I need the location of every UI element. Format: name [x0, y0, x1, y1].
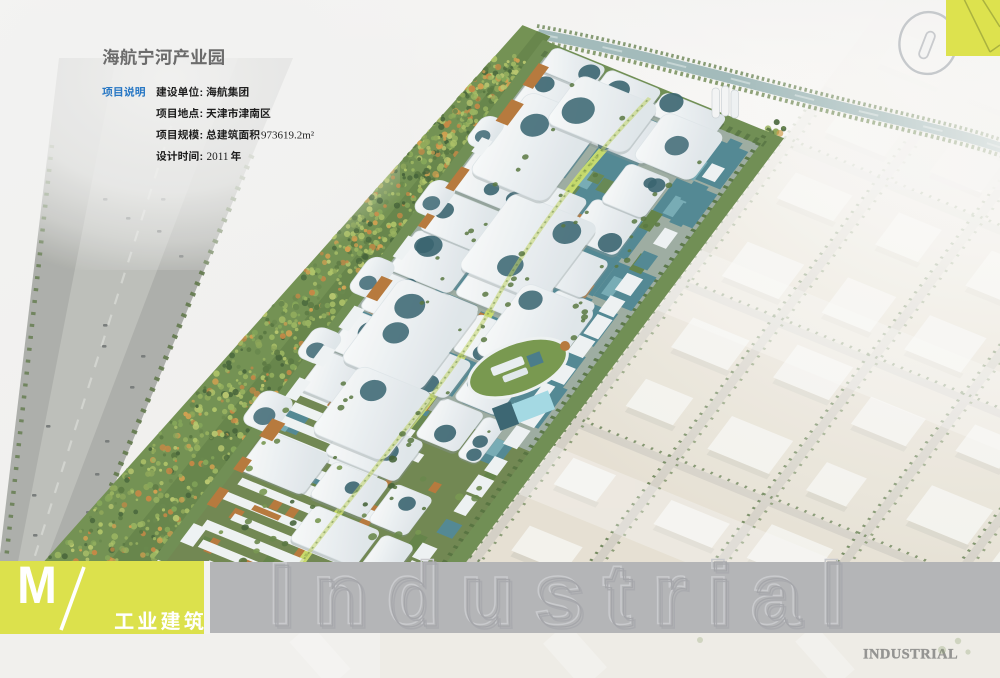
svg-text::: : — [200, 108, 204, 120]
svg-text:Industrial: Industrial — [270, 546, 866, 645]
svg-text:973619.2m²: 973619.2m² — [261, 130, 315, 142]
svg-text::: : — [200, 151, 204, 163]
svg-text::: : — [200, 87, 204, 99]
svg-text:M: M — [17, 555, 57, 615]
svg-text::: : — [200, 130, 204, 142]
svg-text:2011: 2011 — [207, 151, 229, 163]
